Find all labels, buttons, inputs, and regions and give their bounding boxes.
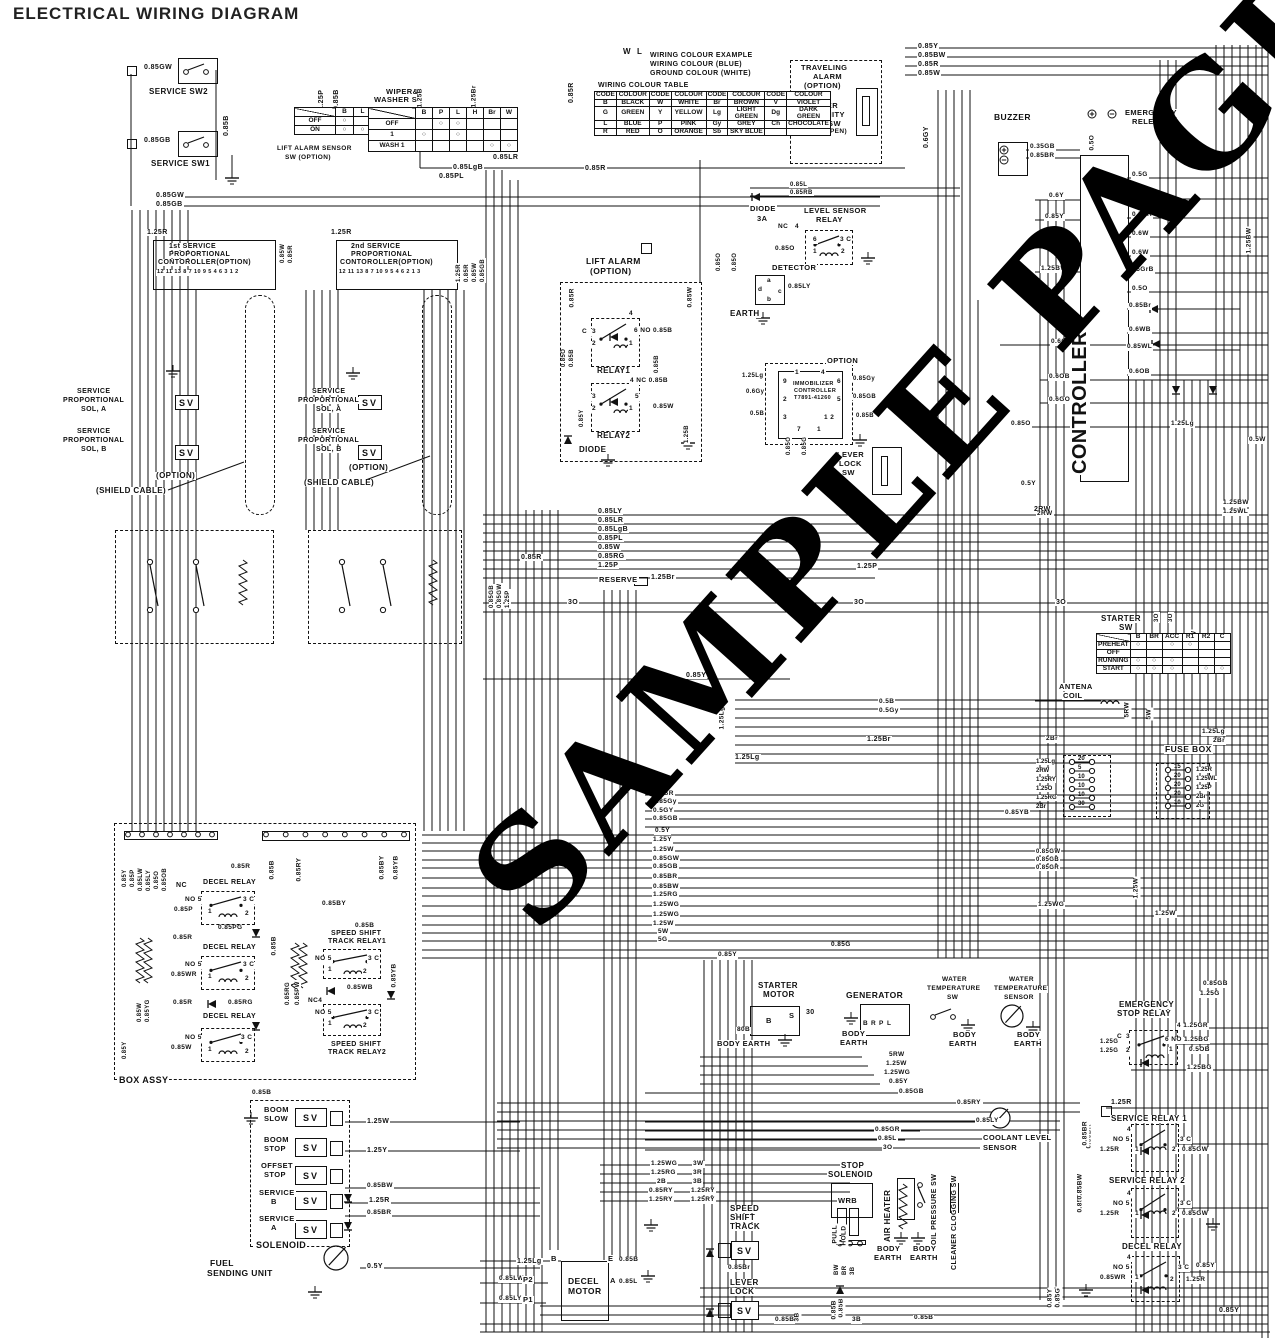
wire-label: 0.85YB xyxy=(392,962,399,988)
wire-label: 1 xyxy=(1168,1047,1174,1054)
table-cell: C xyxy=(1214,634,1230,642)
wire-label: 1.25WG xyxy=(883,1070,911,1077)
table-cell xyxy=(1182,650,1198,658)
wire-label: 0.85Y xyxy=(122,1040,128,1060)
diode-icon xyxy=(836,1286,844,1294)
wire-label: 0.85LgB xyxy=(452,164,484,171)
wire-label: 0.85GB xyxy=(1202,981,1229,988)
component-label: SOLENOID xyxy=(255,1241,307,1250)
wire-label: 2 xyxy=(1171,1211,1177,1218)
wire-label: 0.85PL xyxy=(438,173,465,180)
wire-label: BR xyxy=(842,1265,848,1276)
fuse-row: 1.25Lg xyxy=(1036,759,1055,765)
wire-label: b xyxy=(766,297,772,304)
component-label: SHIFT xyxy=(729,1214,756,1222)
component-label: CONTROLLER xyxy=(793,389,837,395)
table-cell: ON xyxy=(295,126,336,135)
component-box xyxy=(1063,755,1111,817)
wire-label: 0.85GW xyxy=(1181,1147,1209,1154)
wire-label: 0.85LY xyxy=(975,1118,1000,1125)
component-label: MOTOR xyxy=(762,991,796,999)
wire-label: 4 xyxy=(1126,1255,1132,1262)
table-cell: BR xyxy=(1146,634,1162,642)
component-box xyxy=(849,1208,859,1236)
component-label: BODY xyxy=(841,1030,866,1038)
sv-box: SV xyxy=(295,1220,327,1239)
wire-label: 1.25Lg xyxy=(516,1258,543,1265)
component-label: IMMOBILIZER xyxy=(792,382,835,388)
wire-label: 0.5B xyxy=(878,699,895,706)
wire-label: 1.25WG xyxy=(652,902,680,909)
coil-icon xyxy=(1101,701,1119,704)
component-box xyxy=(422,295,452,515)
wire-label: 0.85Y xyxy=(1048,1288,1055,1309)
component-label: SERVICE xyxy=(311,388,346,395)
component-label: SOL, B xyxy=(80,446,108,453)
component-box xyxy=(330,1223,343,1238)
wire-label: 0.85WR xyxy=(170,972,198,979)
wire-label: 3 C xyxy=(242,962,255,969)
wire-label: 3B xyxy=(795,1311,802,1322)
wire-label: 0.85GW xyxy=(652,856,680,863)
table-cell: B xyxy=(595,99,617,107)
component-label: WIRING COLOUR TABLE xyxy=(597,82,690,89)
component-label: DETECTOR xyxy=(771,264,817,272)
wire-label: 1.25RY xyxy=(648,1197,674,1204)
table-cell: ○ xyxy=(484,141,501,152)
wire-label: 0.85B xyxy=(223,114,230,137)
component-label: (SHIELD CABLE) xyxy=(95,487,167,495)
fuse-amp: 20 xyxy=(1174,791,1181,797)
table-cell: ○ xyxy=(336,117,354,126)
table-cell xyxy=(467,141,484,152)
table-cell: ○ xyxy=(1162,666,1182,674)
table-cell: P xyxy=(649,121,671,129)
wire-label: 80B xyxy=(736,1027,751,1034)
wire-label: 0.85BW xyxy=(917,52,947,59)
fuse-label: 2Br xyxy=(1196,794,1206,800)
table-cell: ○ xyxy=(1162,642,1182,650)
component-label: PROPORTIONAL xyxy=(297,397,360,404)
wire-label: 1.25G xyxy=(1099,1048,1119,1054)
wire-label: 0.85WR xyxy=(1099,1275,1127,1282)
table-cell xyxy=(295,108,336,117)
wire-label: 3 C xyxy=(240,1035,253,1042)
component-label: CONTOROLLER(OPTION) xyxy=(157,259,252,266)
table-cell: CODE xyxy=(706,92,728,100)
wire-label: 3 C xyxy=(839,237,852,244)
component-label: TRACK RELAY1 xyxy=(327,938,387,945)
fuse-label: 2G xyxy=(1196,803,1204,809)
table-cell: BLACK xyxy=(616,99,649,107)
component-label: AIR HEATER xyxy=(884,1189,892,1243)
component-label: WIRING COLOUR (BLUE) xyxy=(649,61,743,68)
component-label: EARTH xyxy=(839,1039,869,1047)
wire-label: P2 xyxy=(522,1276,534,1284)
table-cell xyxy=(501,119,518,130)
wire-label: 0.85G xyxy=(830,942,852,949)
wire-label: W xyxy=(622,48,632,56)
component-label: BUZZER xyxy=(993,113,1032,122)
wire-label: 0.5Gy xyxy=(878,708,900,715)
sv-box: SV xyxy=(295,1166,327,1185)
wire-label: 3 C xyxy=(242,897,255,904)
table-cell: Lg xyxy=(706,107,728,121)
wire-label: 0.85B xyxy=(270,859,277,880)
table-cell xyxy=(433,130,450,141)
wire-label: 0.85RG xyxy=(227,1000,254,1007)
wire-label: 3 C xyxy=(1179,1201,1192,1208)
wire-label: 3W xyxy=(692,1161,705,1168)
table-cell: CODE xyxy=(649,92,671,100)
wire-label: 0.85BR xyxy=(652,874,678,881)
fuse-label: 1.25WL xyxy=(1196,776,1217,782)
table-cell xyxy=(765,128,787,136)
component-label: (SHIELD CABLE) xyxy=(303,479,375,487)
table-cell: RED xyxy=(616,128,649,136)
wire-label: 0.85Y xyxy=(579,408,585,428)
sv-box: SV xyxy=(175,445,199,460)
fuse-row: 1.25O xyxy=(1036,786,1052,792)
wire-label: 0.85O xyxy=(786,436,792,456)
wire-label: 0.85WB xyxy=(346,985,374,992)
wire-label: 1.25RG xyxy=(650,1170,677,1177)
wire-label: 0.85W xyxy=(472,262,478,283)
wire-label: 6 NO 0.85B xyxy=(633,328,673,335)
table-cell: B xyxy=(336,108,354,117)
wire-label: 4 1.25GR xyxy=(1176,1023,1209,1030)
component-label: SERVICE xyxy=(76,388,111,395)
wire-label: 1.25Lg xyxy=(1201,729,1226,736)
table-cell: Br xyxy=(484,108,501,119)
component-box xyxy=(897,1178,915,1220)
wire-label: 3O xyxy=(1055,599,1067,606)
wire-label: A xyxy=(270,1224,278,1232)
component-label: NO 5 xyxy=(314,1010,333,1017)
wire-label: 0.85B xyxy=(913,1315,934,1322)
table-cell: GREY xyxy=(728,121,765,129)
table-cell: 1 xyxy=(369,130,416,141)
wire-label: 0.85O xyxy=(154,870,160,890)
wire-label: 0.85B xyxy=(354,923,375,930)
wire-label: 1.25WG xyxy=(1037,902,1065,909)
table-cell: OFF xyxy=(295,117,336,126)
wire-label: 1.25WL xyxy=(1222,509,1249,516)
component-box xyxy=(127,66,137,76)
component-label: DECEL RELAY xyxy=(202,1013,257,1020)
wire-label: a xyxy=(766,278,772,285)
fuse-amp: 20 xyxy=(1078,756,1085,762)
table-cell: ○ xyxy=(1130,666,1146,674)
wire-label: 1 xyxy=(628,406,634,413)
component-label: SOL, B xyxy=(315,446,343,453)
wire-label: 2 xyxy=(362,969,368,976)
table-cell xyxy=(484,119,501,130)
wire-label: 0.85W xyxy=(652,404,675,411)
wire-label: 6 NO 1.25BG xyxy=(1164,1037,1210,1044)
wire-label: 0.85GB xyxy=(155,201,184,208)
component-box xyxy=(641,243,652,254)
wire-label: 0.85W xyxy=(280,243,286,264)
wire-label: 0.85Y xyxy=(1195,1263,1216,1270)
wire-label: 0.85BW xyxy=(652,884,680,891)
component-label: PROPORTIONAL xyxy=(168,251,231,258)
table-cell xyxy=(1146,642,1162,650)
wire-label: 3A xyxy=(756,215,768,223)
table-cell: R xyxy=(595,128,617,136)
component-label: PULL xyxy=(833,1224,840,1245)
wire-label: R xyxy=(870,1021,877,1028)
wire-label: 2 xyxy=(1171,1147,1177,1154)
wire-label: 0.85L xyxy=(789,182,808,188)
wire-label: 1.25BW xyxy=(1222,500,1250,507)
wire-label: 0.85GW xyxy=(1035,849,1061,855)
component-box xyxy=(245,295,275,515)
component-label: NO 5 xyxy=(1112,1137,1131,1144)
wire-label: 1.25R xyxy=(1099,1147,1120,1154)
wire-label: 1.25R xyxy=(146,229,169,236)
component-label: NO 5 xyxy=(184,897,203,904)
wire-label: 3 xyxy=(591,394,597,401)
table-cell: G xyxy=(595,107,617,121)
component-box xyxy=(718,1243,731,1258)
table-cell xyxy=(501,130,518,141)
wire-label: 0.85GB xyxy=(1035,857,1060,863)
wire-label: 1 xyxy=(1134,1147,1140,1154)
wire-label: 0.85BW xyxy=(366,1183,394,1190)
sv-box: SV xyxy=(295,1108,327,1127)
table-cell: O xyxy=(649,128,671,136)
wire-label: 0.5Y xyxy=(366,1263,384,1270)
wire-label: 0.85RG xyxy=(285,981,291,1006)
wire-label: 1 xyxy=(628,341,634,348)
table-cell: P xyxy=(433,108,450,119)
wire-label: 2RW xyxy=(1036,511,1054,518)
wire-label: 0.5OB xyxy=(1188,1047,1211,1054)
table-cell: ○ xyxy=(1198,666,1214,674)
component-label: COOLANT LEVEL xyxy=(982,1134,1053,1142)
wire-label: 0.85GW xyxy=(497,583,503,609)
wire-label: 1.25W xyxy=(366,1118,390,1125)
wiring-diagram-page: ELECTRICAL WIRING DIAGRAM SAMPLE PAGE SV… xyxy=(0,0,1275,1338)
wire-label: 1.25R xyxy=(330,229,353,236)
component-label: DECEL RELAY xyxy=(202,879,257,886)
table-cell: L xyxy=(450,108,467,119)
wire-label: 1.25BW xyxy=(1247,227,1254,255)
sv-box: SV xyxy=(358,445,382,460)
component-label: RELAY xyxy=(815,216,844,224)
wire-label: 0.85Y xyxy=(717,952,738,959)
component-label: DIODE xyxy=(578,446,607,454)
wire-label: 1.25G xyxy=(1199,991,1221,998)
wire-label: 0.5Y xyxy=(1020,481,1037,488)
wire-label: 0.85OB xyxy=(162,867,168,892)
wire-label: 0.85RB xyxy=(789,190,814,196)
sv-box: SV xyxy=(295,1138,327,1157)
component-box xyxy=(330,1169,343,1184)
wire-label: 5 xyxy=(634,394,640,401)
component-label: NO 5 xyxy=(314,956,333,963)
wire-label: 0.85R xyxy=(917,61,940,68)
component-label: RELAY1 xyxy=(596,367,631,375)
component-label: BODY xyxy=(952,1031,977,1039)
wire-label: E xyxy=(607,1255,614,1263)
sv-box: SV xyxy=(731,1241,759,1260)
table-cell: ○ xyxy=(336,126,354,135)
wire-label: 1 xyxy=(1134,1275,1140,1282)
component-label: PROPORTIONAL xyxy=(297,437,360,444)
wire-label: 1.25WG xyxy=(650,1161,678,1168)
wire-label: 1.25Br xyxy=(650,574,676,581)
wire-label: B xyxy=(550,1255,558,1263)
wire-label: 9 xyxy=(782,379,788,386)
component-label: TRACK xyxy=(729,1223,761,1231)
wire-label: A xyxy=(609,1277,617,1285)
wire-label: 0.35GB xyxy=(1029,144,1056,151)
wire-label: 0.85LR xyxy=(492,154,519,161)
table-cell: WASH 1 xyxy=(369,141,416,152)
sv-box: SV xyxy=(295,1191,327,1210)
table-cell xyxy=(1198,642,1214,650)
wire-label: 1.25Br xyxy=(472,84,479,108)
table-cell xyxy=(433,141,450,152)
component-label: T7891-41260 xyxy=(793,396,832,402)
component-label: PROPORTIONAL xyxy=(62,437,125,444)
table-cell xyxy=(467,119,484,130)
wire-label: 3 C xyxy=(367,1010,380,1017)
wire-label: d xyxy=(757,287,763,294)
wire-label: 2 xyxy=(244,911,250,918)
component-label: ANTENA xyxy=(1058,683,1094,691)
table-cell: Br xyxy=(706,99,728,107)
component-label: SERVICE RELAY 1 xyxy=(1110,1115,1188,1123)
component-label: LIFT ALARM SENSOR xyxy=(276,146,353,153)
component-box xyxy=(308,530,462,644)
table-cell xyxy=(1198,650,1214,658)
component-label: SOL, A xyxy=(315,406,342,413)
wire-label: C xyxy=(581,329,588,336)
wire-label: 2Br xyxy=(1045,736,1059,743)
component-label: DECEL RELAY xyxy=(202,944,257,951)
wire-label: 3 xyxy=(1125,1034,1131,1041)
fuse-row: 1.25RG xyxy=(1036,795,1057,801)
table-cell: L xyxy=(595,121,617,129)
wire-label: 2 xyxy=(244,976,250,983)
wire-label: B xyxy=(862,1021,869,1028)
wire-label: 1.25G xyxy=(1099,1039,1119,1045)
wire-label: 1.25R xyxy=(1110,1099,1133,1106)
diode-icon xyxy=(1172,386,1180,394)
wire-label: 0.85O xyxy=(716,252,722,272)
wire-label: 0.85O xyxy=(561,348,567,368)
component-label: STARTER xyxy=(757,982,799,990)
wire-label: 6 xyxy=(812,237,818,244)
component-label: PROPORTIONAL xyxy=(62,397,125,404)
wire-label: 0.85WL xyxy=(1126,344,1153,351)
wire-label: 0.85W xyxy=(597,544,621,551)
table-cell: Gy xyxy=(706,121,728,129)
wire-label: 0.6OB xyxy=(1128,369,1151,376)
wire-label: 1.25Lg xyxy=(741,373,764,379)
fuse-amp: 20 xyxy=(1174,782,1181,788)
table-cell xyxy=(1182,666,1198,674)
component-label: BODY xyxy=(912,1245,937,1253)
wire-label: 0.85P xyxy=(130,868,136,888)
wire-label: NC xyxy=(777,224,789,231)
wire-label: 1.25P xyxy=(505,589,511,609)
component-label: SERVICE xyxy=(311,428,346,435)
wire-label: 0.6WB xyxy=(1128,327,1152,334)
wire-label: 1.25RG xyxy=(652,892,679,899)
component-box xyxy=(178,58,218,84)
wire-label: 2 xyxy=(362,1023,368,1030)
component-box xyxy=(330,1141,343,1156)
component-label: MOTOR xyxy=(567,1287,602,1296)
wire-label: 0.85B xyxy=(654,354,660,374)
wire-label: 1.25B xyxy=(684,424,690,444)
component-label: STOP xyxy=(263,1171,287,1179)
wire-label: 1.25Lg xyxy=(1170,421,1195,428)
wire-label: 0.85Br xyxy=(727,1265,751,1272)
wire-label: 0.85W xyxy=(137,1002,143,1023)
table-cell: SKY BLUE xyxy=(728,128,765,136)
wire-label: 0.85GW xyxy=(1181,1211,1209,1218)
wire-label: 0.85B xyxy=(251,1090,272,1097)
wire-label: 3 C xyxy=(1177,1265,1190,1272)
wire-label: 0.85R xyxy=(464,263,470,283)
wire-label: P xyxy=(878,1021,885,1028)
wire-label: 0.85R xyxy=(288,244,294,264)
wire-label: 2B xyxy=(656,1179,667,1186)
wire-label: 1.25R xyxy=(368,1197,391,1204)
wire-label: 0.85PW xyxy=(295,980,301,1006)
wire-label: B xyxy=(765,1017,773,1025)
wire-label: 3O xyxy=(1168,612,1174,623)
wire-label: 2 xyxy=(782,397,788,404)
table-cell: CHOCOLATE xyxy=(787,121,831,129)
sv-box: SV xyxy=(731,1301,759,1320)
wire-label: 0.85R xyxy=(172,1000,193,1007)
wire-label: 3R xyxy=(692,1170,703,1177)
wire-label: 0.85Y xyxy=(1218,1307,1240,1314)
component-label: SPEED SHIFT xyxy=(330,1041,382,1048)
wire-label: 0.85GR xyxy=(874,1127,901,1134)
component-label: SERVICE SW2 xyxy=(148,88,209,96)
sv-box: SV xyxy=(358,395,382,410)
wiring-colour-table: CODECOLOURCODECOLOURCODECOLOURCODECOLOUR… xyxy=(594,91,831,136)
wire-label: 0.85O xyxy=(774,246,796,253)
component-label: NO 5 xyxy=(1112,1265,1131,1272)
component-label: SW (OPTION) xyxy=(284,155,332,162)
table-cell: R2 xyxy=(1198,634,1214,642)
wire-label: 0.85R xyxy=(570,287,577,308)
fuse-amp: 20 xyxy=(1174,773,1181,779)
component-label: BODY xyxy=(876,1245,901,1253)
component-label: BOOM xyxy=(263,1106,290,1114)
wire-label: 0.85YB xyxy=(394,854,401,880)
wire-label: SW xyxy=(1118,624,1134,632)
component-label: BODY EARTH xyxy=(716,1040,771,1048)
wire-label: 0.85B xyxy=(272,935,279,956)
component-label: TRACK RELAY2 xyxy=(327,1049,387,1056)
wire-label: 0.85RG xyxy=(597,553,626,560)
wire-label: 2 xyxy=(1169,1277,1175,1284)
table-cell: CODE xyxy=(595,92,617,100)
sv-box: SV xyxy=(175,395,199,410)
component-label: RELAY2 xyxy=(596,432,631,440)
table-cell: ○ xyxy=(433,119,450,130)
diode-icon xyxy=(1152,340,1160,348)
